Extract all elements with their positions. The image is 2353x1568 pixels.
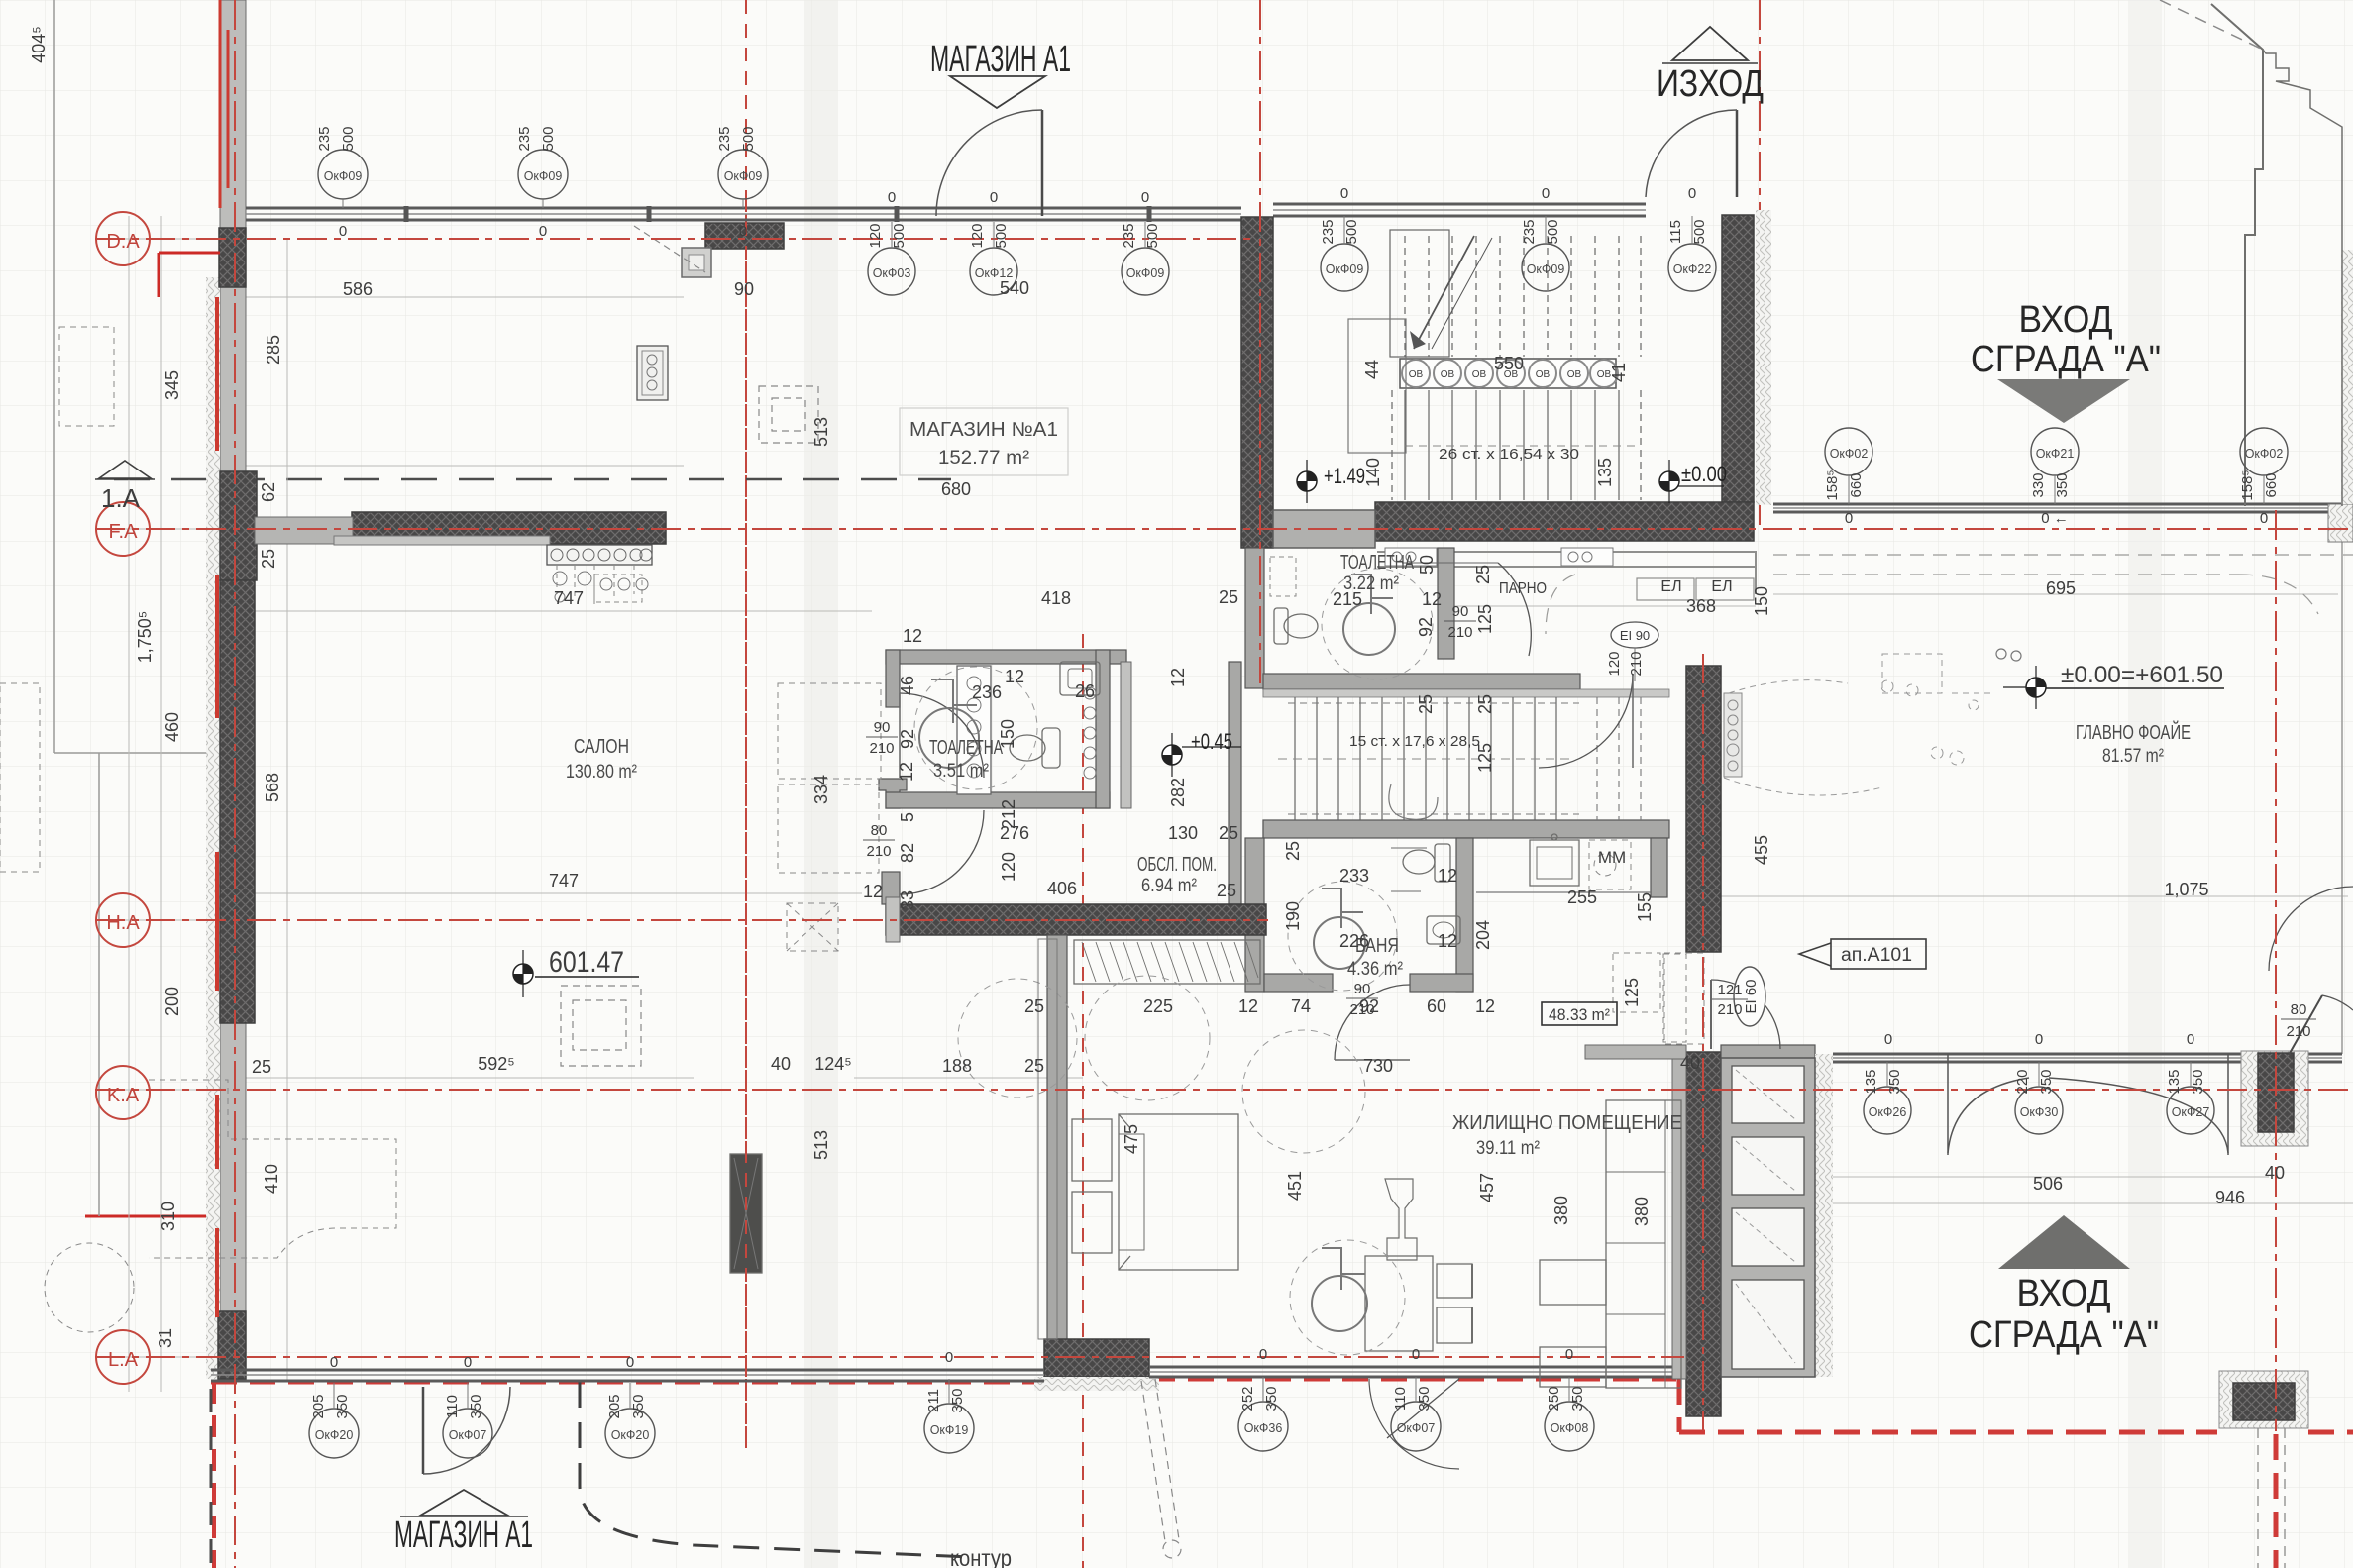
svg-text:220: 220 [2014, 1069, 2031, 1094]
svg-text:МАГАЗИН А1: МАГАЗИН А1 [930, 39, 1071, 80]
svg-text:25: 25 [1024, 1056, 1044, 1076]
svg-text:25: 25 [1024, 996, 1044, 1016]
svg-text:457: 457 [1477, 1173, 1497, 1202]
svg-text:345: 345 [162, 370, 182, 400]
svg-text:747: 747 [549, 871, 579, 890]
svg-text:ММ: ММ [1598, 848, 1626, 867]
svg-text:4.36 m²: 4.36 m² [1347, 959, 1403, 980]
svg-text:235: 235 [716, 126, 733, 151]
svg-text:ЕЛ: ЕЛ [1660, 578, 1681, 595]
svg-text:ОВ: ОВ [1441, 369, 1455, 380]
svg-text:0: 0 [1259, 1346, 1267, 1363]
svg-text:130.80 m²: 130.80 m² [566, 762, 637, 783]
svg-text:205: 205 [310, 1394, 327, 1418]
svg-text:+0.45: +0.45 [1191, 729, 1232, 754]
svg-text:82: 82 [898, 843, 917, 863]
svg-text:СГРАДА "А": СГРАДА "А" [1969, 1314, 2159, 1356]
svg-text:90: 90 [734, 279, 754, 299]
svg-text:235: 235 [1121, 223, 1137, 248]
svg-text:ОкФ19: ОкФ19 [930, 1423, 969, 1437]
svg-text:12: 12 [1438, 931, 1457, 951]
svg-text:31: 31 [156, 1328, 175, 1348]
svg-text:0: 0 [739, 223, 747, 240]
svg-text:0: 0 [945, 1349, 953, 1366]
svg-text:334: 334 [811, 775, 831, 804]
svg-text:ТОАЛЕТНА: ТОАЛЕТНА [1340, 552, 1414, 574]
svg-text:ОкФ21: ОкФ21 [2036, 447, 2075, 461]
svg-text:ЕЛ: ЕЛ [1711, 578, 1732, 595]
svg-text:252: 252 [1239, 1386, 1256, 1411]
svg-text:12: 12 [1438, 866, 1457, 886]
svg-text:506: 506 [2033, 1174, 2063, 1194]
svg-text:568: 568 [263, 773, 282, 802]
svg-text:ОкФ07: ОкФ07 [449, 1428, 487, 1442]
svg-text:1.A: 1.A [101, 483, 141, 513]
svg-text:ОкФ02: ОкФ02 [2245, 447, 2284, 461]
svg-text:ОВ: ОВ [1536, 369, 1551, 380]
svg-text:695: 695 [2046, 578, 2076, 598]
svg-text:1,075: 1,075 [2164, 880, 2208, 899]
svg-text:0: 0 [888, 189, 896, 206]
svg-text:282: 282 [1168, 778, 1188, 807]
svg-text:225: 225 [1143, 996, 1173, 1016]
svg-text:26: 26 [1075, 681, 1095, 701]
svg-text:90: 90 [874, 719, 891, 736]
svg-text:ОкФ20: ОкФ20 [611, 1428, 650, 1442]
svg-text:120: 120 [969, 223, 986, 248]
svg-text:5: 5 [898, 812, 917, 822]
svg-text:40: 40 [1680, 1053, 1700, 1073]
svg-text:235: 235 [316, 126, 333, 151]
svg-text:25: 25 [1475, 694, 1495, 714]
svg-text:115: 115 [1667, 220, 1684, 244]
svg-text:418: 418 [1041, 588, 1071, 608]
svg-text:МАГАЗИН А1: МАГАЗИН А1 [394, 1515, 533, 1556]
svg-text:0: 0 [1412, 1346, 1420, 1363]
svg-text:ОкФ02: ОкФ02 [1830, 447, 1869, 461]
svg-text:ОкФ27: ОкФ27 [2172, 1105, 2210, 1119]
svg-text:233: 233 [1339, 866, 1369, 886]
svg-text:контур: контур [950, 1545, 1012, 1568]
svg-text:ОкФ36: ОкФ36 [1244, 1421, 1283, 1435]
svg-text:ОкФ09: ОкФ09 [724, 169, 763, 183]
svg-text:81.57 m²: 81.57 m² [2102, 746, 2164, 767]
svg-text:ОкФ20: ОкФ20 [315, 1428, 354, 1442]
svg-text:125: 125 [1475, 743, 1495, 773]
svg-text:211: 211 [925, 1389, 942, 1412]
svg-text:ИЗХОД: ИЗХОД [1657, 63, 1764, 105]
svg-text:310: 310 [159, 1202, 178, 1231]
svg-text:460: 460 [162, 712, 182, 742]
svg-text:210: 210 [869, 740, 894, 757]
svg-text:F.A: F.A [109, 521, 139, 543]
svg-text:601.47: 601.47 [549, 946, 624, 979]
svg-text:1,750⁵: 1,750⁵ [135, 611, 155, 664]
svg-text:210: 210 [1628, 651, 1645, 676]
svg-text:25: 25 [252, 1057, 271, 1077]
svg-text:235: 235 [1521, 219, 1538, 244]
svg-text:41: 41 [1609, 363, 1629, 382]
svg-text:ОкФ30: ОкФ30 [2020, 1105, 2059, 1119]
svg-text:540: 540 [1000, 278, 1029, 298]
svg-text:500: 500 [1691, 219, 1708, 244]
svg-text:74: 74 [1291, 996, 1311, 1016]
svg-text:155: 155 [1635, 892, 1655, 922]
svg-text:330: 330 [2030, 472, 2047, 497]
svg-text:500: 500 [740, 126, 757, 151]
svg-text:33: 33 [898, 890, 917, 910]
svg-text:120: 120 [999, 852, 1018, 882]
svg-text:0: 0 [2035, 1031, 2043, 1048]
svg-text:250: 250 [1546, 1386, 1562, 1411]
svg-text:K.A: K.A [107, 1085, 140, 1106]
svg-text:25: 25 [1283, 841, 1303, 861]
svg-text:451: 451 [1285, 1171, 1305, 1201]
svg-text:39.11 m²: 39.11 m² [1476, 1138, 1540, 1159]
svg-text:0: 0 [1845, 510, 1853, 527]
svg-text:25: 25 [259, 549, 278, 569]
svg-text:25: 25 [1473, 565, 1493, 584]
svg-text:ОкФ09: ОкФ09 [1527, 262, 1565, 276]
svg-text:946: 946 [2215, 1188, 2245, 1207]
svg-text:62: 62 [259, 482, 278, 502]
svg-text:350: 350 [468, 1394, 484, 1418]
svg-text:ОкФ22: ОкФ22 [1673, 262, 1712, 276]
svg-text:0: 0 [1565, 1346, 1573, 1363]
svg-text:12: 12 [1005, 667, 1024, 686]
svg-text:0: 0 [464, 1354, 472, 1371]
svg-text:ОкФ08: ОкФ08 [1551, 1421, 1589, 1435]
svg-text:130: 130 [1168, 823, 1198, 843]
svg-text:ОкФ26: ОкФ26 [1869, 1105, 1907, 1119]
svg-text:350: 350 [1263, 1386, 1280, 1411]
svg-text:12: 12 [863, 882, 883, 901]
svg-text:ПАРНО: ПАРНО [1499, 580, 1547, 597]
svg-text:92: 92 [898, 729, 917, 749]
svg-text:110: 110 [444, 1395, 461, 1418]
svg-text:H.A: H.A [106, 912, 140, 934]
svg-text:500: 500 [1343, 219, 1360, 244]
svg-text:60: 60 [1427, 996, 1446, 1016]
svg-text:350: 350 [2190, 1069, 2206, 1094]
svg-text:ТОАЛЕТНА: ТОАЛЕТНА [929, 737, 1003, 759]
svg-text:25: 25 [1416, 694, 1436, 714]
svg-text:475: 475 [1122, 1124, 1141, 1154]
svg-text:200: 200 [162, 987, 182, 1016]
svg-text:12: 12 [897, 762, 916, 782]
svg-text:0: 0 [330, 1354, 338, 1371]
svg-text:500: 500 [891, 223, 908, 248]
svg-text:6.94 m²: 6.94 m² [1141, 876, 1197, 896]
svg-text:350: 350 [949, 1388, 966, 1412]
svg-text:680: 680 [941, 479, 971, 499]
svg-text:150: 150 [1752, 586, 1771, 616]
svg-text:80: 80 [2291, 1001, 2307, 1018]
svg-text:+1.49: +1.49 [1324, 464, 1365, 488]
svg-text:СГРАДА "А": СГРАДА "А" [1971, 339, 2161, 380]
svg-text:0: 0 [539, 223, 547, 240]
svg-text:210: 210 [1447, 624, 1472, 641]
svg-text:15 ст. x 17,6 x 28,5: 15 ст. x 17,6 x 28,5 [1349, 733, 1480, 750]
svg-text:550: 550 [1494, 354, 1524, 373]
svg-text:80: 80 [871, 822, 888, 839]
svg-text:ОкФ09: ОкФ09 [1326, 262, 1364, 276]
svg-text:40: 40 [771, 1054, 791, 1074]
svg-text:124⁵: 124⁵ [814, 1054, 852, 1074]
svg-text:120: 120 [1606, 651, 1623, 676]
svg-text:0: 0 [626, 1354, 634, 1371]
svg-text:406: 406 [1047, 879, 1077, 898]
svg-text:152.77 m²: 152.77 m² [938, 448, 1029, 469]
svg-text:410: 410 [262, 1164, 281, 1194]
svg-text:350: 350 [1416, 1386, 1433, 1411]
svg-text:ВХОД: ВХОД [2017, 1273, 2111, 1314]
svg-text:500: 500 [993, 223, 1010, 248]
svg-text:350: 350 [2038, 1069, 2055, 1094]
svg-text:0: 0 [2187, 1031, 2194, 1048]
svg-text:48.33 m²: 48.33 m² [1549, 1005, 1610, 1024]
svg-text:210: 210 [2286, 1023, 2310, 1040]
svg-text:350: 350 [1569, 1386, 1586, 1411]
svg-text:ВХОД: ВХОД [2019, 299, 2113, 341]
svg-text:380: 380 [1551, 1196, 1571, 1225]
svg-text:215: 215 [1333, 589, 1362, 609]
svg-text:44: 44 [1362, 360, 1382, 379]
svg-text:25: 25 [1219, 587, 1238, 607]
svg-text:ап.А101: ап.А101 [1841, 945, 1912, 966]
svg-text:0 ←: 0 ← [2041, 510, 2069, 527]
svg-text:0: 0 [1340, 185, 1348, 202]
svg-text:12: 12 [1238, 996, 1258, 1016]
svg-text:204: 204 [1473, 920, 1493, 950]
svg-text:ОкФ09: ОкФ09 [524, 169, 563, 183]
svg-text:0: 0 [1141, 189, 1149, 206]
svg-text:404⁵: 404⁵ [29, 26, 49, 63]
svg-text:EI 60: EI 60 [1743, 979, 1760, 1013]
svg-text:210: 210 [1717, 1001, 1742, 1018]
svg-text:513: 513 [811, 417, 831, 447]
svg-text:0: 0 [2260, 510, 2268, 527]
svg-text:EI 90: EI 90 [1620, 628, 1650, 643]
svg-text:255: 255 [1567, 888, 1597, 907]
svg-text:12: 12 [1475, 996, 1495, 1016]
svg-text:188: 188 [942, 1056, 972, 1076]
svg-text:3.51 m²: 3.51 m² [933, 761, 989, 782]
svg-text:500: 500 [340, 126, 357, 151]
svg-text:±0.00: ±0.00 [1681, 462, 1727, 486]
svg-text:110: 110 [1392, 1387, 1409, 1411]
svg-text:592⁵: 592⁵ [478, 1054, 515, 1074]
svg-text:660: 660 [2263, 472, 2280, 497]
svg-text:210: 210 [866, 843, 891, 860]
svg-text:L.A: L.A [108, 1349, 139, 1371]
svg-text:455: 455 [1752, 835, 1771, 865]
svg-text:135: 135 [1595, 458, 1615, 487]
svg-text:0: 0 [1688, 185, 1696, 202]
svg-text:ЖИЛИЩНО ПОМЕЩЕНИЕ: ЖИЛИЩНО ПОМЕЩЕНИЕ [1452, 1112, 1682, 1134]
svg-text:586: 586 [343, 279, 373, 299]
svg-text:26 ст. x 16,54 x 30: 26 ст. x 16,54 x 30 [1439, 446, 1579, 463]
svg-text:40: 40 [2265, 1163, 2285, 1183]
svg-text:0: 0 [339, 223, 347, 240]
svg-text:90: 90 [1354, 981, 1371, 997]
svg-text:747: 747 [554, 588, 584, 608]
svg-text:ОБСЛ. ПОМ.: ОБСЛ. ПОМ. [1137, 854, 1217, 876]
svg-text:120: 120 [867, 223, 884, 248]
svg-text:212: 212 [999, 799, 1018, 829]
svg-text:0: 0 [990, 189, 998, 206]
svg-text:121: 121 [1717, 982, 1742, 998]
svg-text:90: 90 [1452, 603, 1469, 620]
svg-text:500: 500 [1144, 223, 1161, 248]
svg-text:25: 25 [1217, 881, 1236, 900]
svg-text:380: 380 [1632, 1197, 1652, 1226]
svg-text:190: 190 [1283, 901, 1303, 931]
svg-text:125: 125 [1622, 978, 1642, 1007]
svg-text:12: 12 [1168, 668, 1188, 687]
svg-text:205: 205 [606, 1394, 623, 1418]
svg-text:ОкФ09: ОкФ09 [324, 169, 363, 183]
svg-text:135: 135 [1863, 1069, 1879, 1094]
svg-text:235: 235 [516, 126, 533, 151]
svg-text:ОВ: ОВ [1409, 369, 1424, 380]
svg-text:350: 350 [2054, 472, 2071, 497]
svg-text:236: 236 [972, 682, 1002, 702]
svg-text:50: 50 [1417, 555, 1437, 575]
svg-text:158⁵: 158⁵ [1824, 470, 1841, 500]
svg-text:12: 12 [1422, 589, 1442, 609]
svg-text:ОкФ09: ОкФ09 [1126, 266, 1165, 280]
svg-text:210: 210 [1349, 1001, 1374, 1018]
svg-text:140: 140 [1363, 458, 1383, 487]
svg-text:730: 730 [1363, 1056, 1393, 1076]
svg-text:350: 350 [334, 1394, 351, 1418]
svg-text:0: 0 [1884, 1031, 1892, 1048]
svg-text:513: 513 [811, 1130, 831, 1160]
svg-text:350: 350 [1886, 1069, 1903, 1094]
svg-text:ОкФ03: ОкФ03 [873, 266, 911, 280]
svg-text:МАГАЗИН №А1: МАГАЗИН №А1 [909, 419, 1058, 441]
svg-text:150: 150 [998, 719, 1017, 749]
svg-text:125: 125 [1475, 604, 1495, 634]
svg-text:D.A: D.A [106, 231, 140, 253]
svg-text:135: 135 [2166, 1069, 2183, 1094]
svg-text:46: 46 [898, 676, 917, 695]
svg-text:0: 0 [1542, 185, 1550, 202]
svg-text:ГЛАВНО ФОАЙЕ: ГЛАВНО ФОАЙЕ [2076, 720, 2191, 744]
svg-text:±0.00=+601.50: ±0.00=+601.50 [2061, 662, 2223, 688]
svg-text:158⁵: 158⁵ [2239, 470, 2256, 500]
svg-text:285: 285 [264, 335, 283, 365]
svg-text:235: 235 [1320, 219, 1337, 244]
svg-text:12: 12 [903, 626, 922, 646]
svg-text:500: 500 [540, 126, 557, 151]
svg-text:660: 660 [1848, 472, 1865, 497]
svg-text:500: 500 [1545, 219, 1561, 244]
svg-text:ОВ: ОВ [1567, 369, 1582, 380]
svg-text:ОВ: ОВ [1472, 369, 1487, 380]
svg-text:25: 25 [1219, 823, 1238, 843]
svg-text:САЛОН: САЛОН [574, 736, 629, 758]
svg-text:ОкФ07: ОкФ07 [1397, 1421, 1436, 1435]
svg-text:350: 350 [630, 1394, 647, 1418]
svg-text:92: 92 [1416, 617, 1436, 637]
svg-text:226: 226 [1339, 931, 1369, 951]
svg-text:368: 368 [1686, 596, 1716, 616]
